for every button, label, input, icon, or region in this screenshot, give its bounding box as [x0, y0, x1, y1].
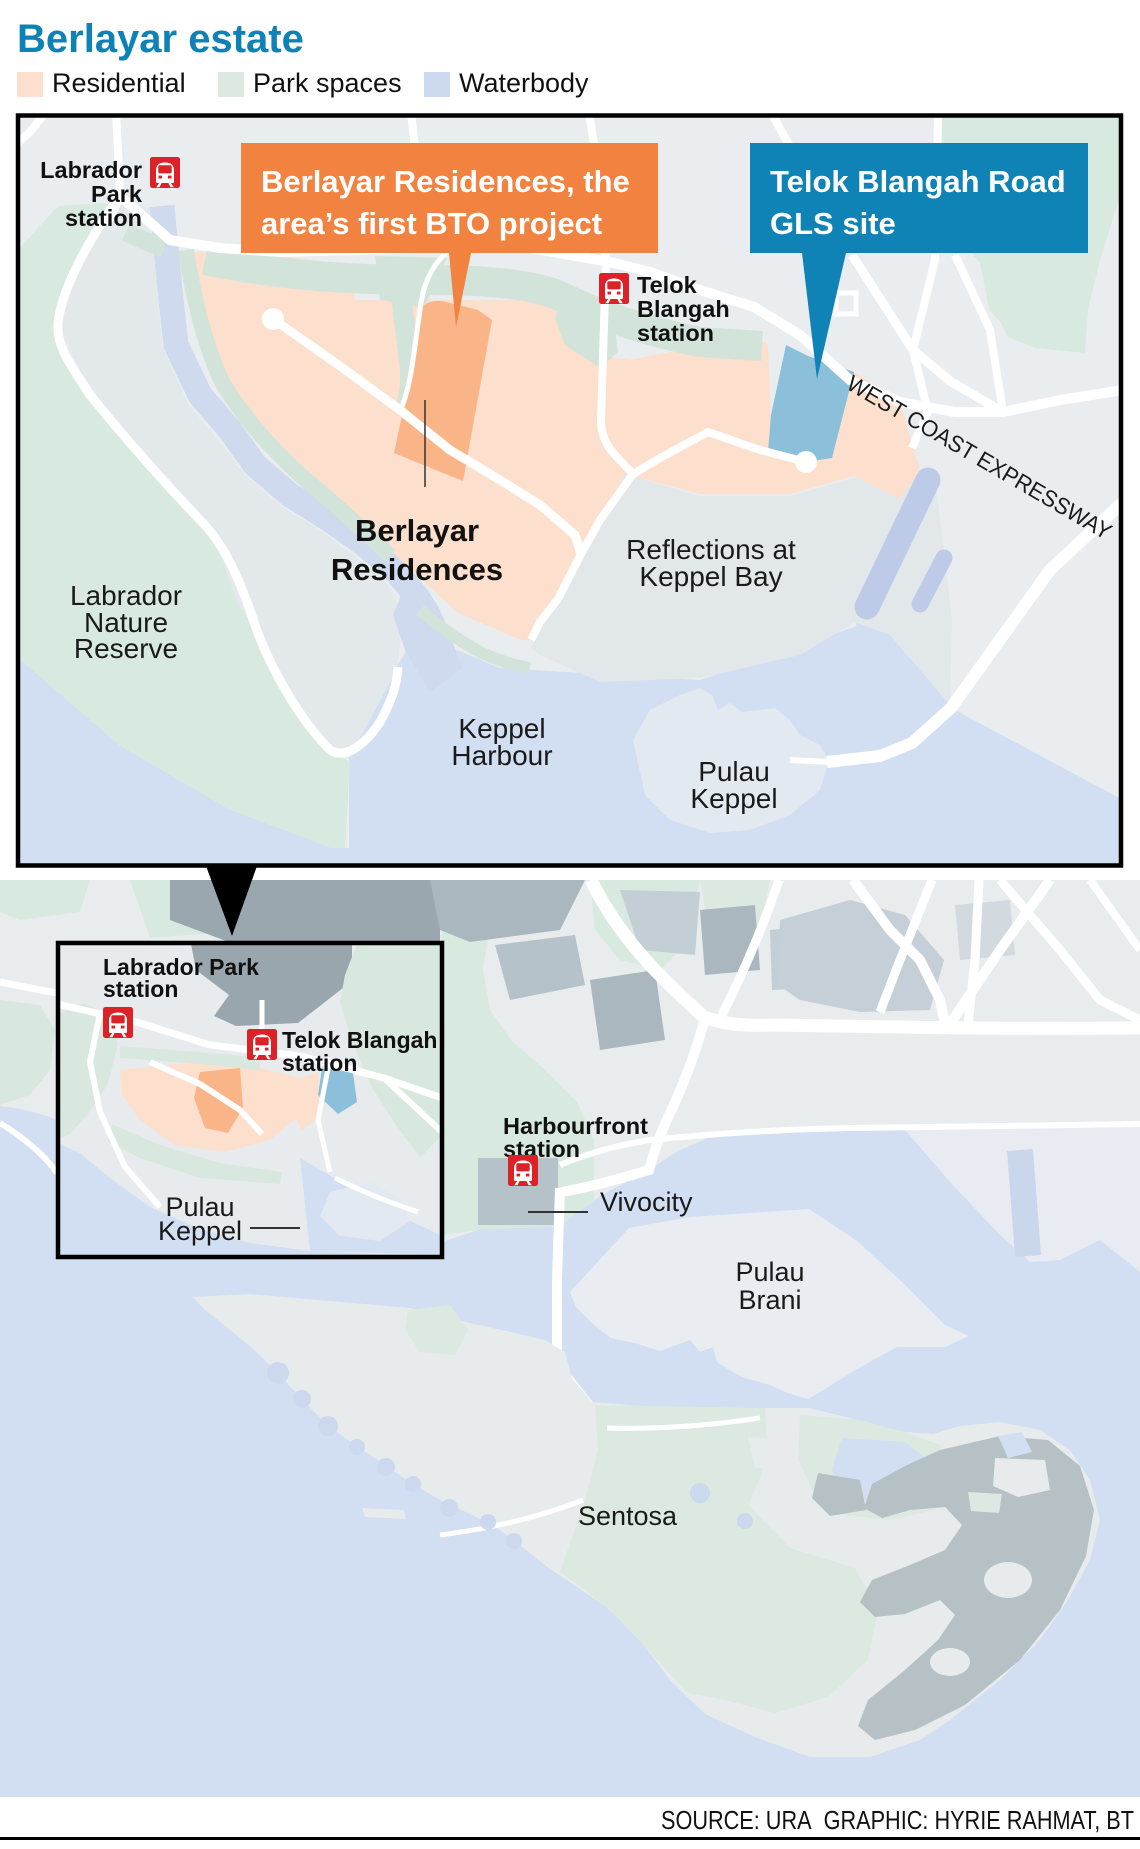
svg-text:Reserve: Reserve [74, 633, 178, 664]
svg-text:Keppel: Keppel [690, 783, 777, 814]
svg-text:Residences: Residences [331, 552, 503, 587]
svg-text:GLS site: GLS site [770, 206, 896, 241]
svg-text:Blangah: Blangah [637, 296, 730, 322]
svg-text:Berlayar Residences, the: Berlayar Residences, the [261, 164, 630, 199]
svg-text:Pulau: Pulau [735, 1257, 804, 1287]
svg-text:Park spaces: Park spaces [253, 68, 402, 98]
svg-text:Sentosa: Sentosa [578, 1501, 678, 1531]
svg-text:station: station [103, 976, 178, 1002]
svg-text:station: station [65, 205, 142, 231]
svg-text:Berlayar estate: Berlayar estate [17, 17, 304, 61]
svg-text:Residential: Residential [52, 68, 186, 98]
svg-text:SOURCE: URA GRAPHIC: HYRIE RA: SOURCE: URA GRAPHIC: HYRIE RAHMAT, BT [661, 1805, 1134, 1835]
svg-text:station: station [282, 1050, 357, 1076]
svg-text:Brani: Brani [738, 1285, 801, 1315]
svg-text:Harbour: Harbour [451, 740, 552, 771]
svg-text:Park: Park [91, 181, 143, 207]
svg-text:Keppel Bay: Keppel Bay [639, 561, 782, 592]
svg-text:Labrador: Labrador [40, 157, 142, 183]
svg-text:Vivocity: Vivocity [600, 1187, 693, 1217]
svg-text:Keppel: Keppel [158, 1216, 242, 1246]
svg-text:area’s first BTO project: area’s first BTO project [261, 206, 602, 241]
svg-text:station: station [637, 320, 714, 346]
svg-text:Telok Blangah Road: Telok Blangah Road [770, 164, 1066, 199]
svg-text:Telok: Telok [637, 272, 698, 298]
svg-text:Waterbody: Waterbody [459, 68, 589, 98]
svg-text:Berlayar: Berlayar [355, 513, 479, 548]
